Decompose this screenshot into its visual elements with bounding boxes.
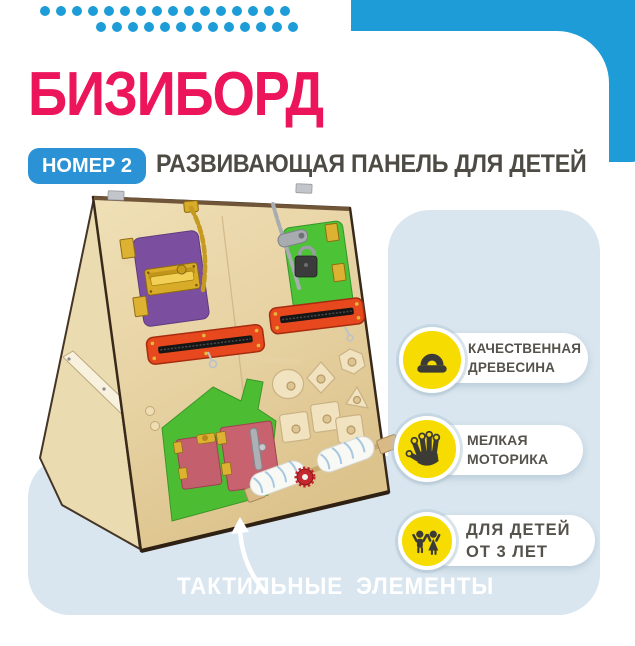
decor-dot xyxy=(272,22,282,32)
decor-dot xyxy=(56,6,66,16)
decor-dot xyxy=(280,6,290,16)
children-icon xyxy=(409,523,445,559)
feature-text: ДРЕВЕСИНА xyxy=(468,358,588,377)
decor-dot xyxy=(184,6,194,16)
decor-dot xyxy=(216,6,226,16)
dots-row-2 xyxy=(96,22,298,32)
hand-icon xyxy=(405,427,449,471)
decor-dot xyxy=(136,6,146,16)
caption-word-1: ТАКТИЛЬНЫЕ xyxy=(177,573,343,600)
number-badge-label: НОМЕР 2 xyxy=(42,155,132,178)
decor-dot xyxy=(176,22,186,32)
feature-text: КАЧЕСТВЕННАЯ xyxy=(468,339,588,358)
busyboard-photo xyxy=(25,180,405,600)
page-title: БИЗИБОРД xyxy=(28,64,323,126)
caption-word-2: ЭЛЕМЕНТЫ xyxy=(356,573,494,600)
decor-dot xyxy=(200,6,210,16)
decor-dot xyxy=(96,22,106,32)
feature-text: МЕЛКАЯ xyxy=(467,431,583,450)
decor-dot xyxy=(152,6,162,16)
decor-dot xyxy=(160,22,170,32)
decor-dot xyxy=(264,6,274,16)
decor-dot xyxy=(224,22,234,32)
decor-dot xyxy=(144,22,154,32)
feature-icon-circle xyxy=(399,327,465,393)
feature-icon-circle xyxy=(398,512,456,570)
decor-dot xyxy=(208,22,218,32)
decor-dot xyxy=(232,6,242,16)
decor-dot xyxy=(104,6,114,16)
page-subtitle: РАЗВИВАЮЩАЯ ПАНЕЛЬ ДЛЯ ДЕТЕЙ xyxy=(156,150,586,179)
promo-page: БИЗИБОРД НОМЕР 2 РАЗВИВАЮЩАЯ ПАНЕЛЬ ДЛЯ … xyxy=(0,0,635,646)
feature-icon-circle xyxy=(394,416,460,482)
decor-dot xyxy=(128,22,138,32)
decor-dot xyxy=(288,22,298,32)
feature-text: МОТОРИКА xyxy=(467,450,583,469)
decor-dot xyxy=(256,22,266,32)
decor-dot xyxy=(240,22,250,32)
decor-dot xyxy=(120,6,130,16)
decor-dot xyxy=(40,6,50,16)
decor-dot xyxy=(112,22,122,32)
caption-label: ТАКТИЛЬНЫЕЭЛЕМЕНТЫ xyxy=(177,573,494,601)
wood-plane-icon xyxy=(411,339,453,381)
dots-row-1 xyxy=(40,6,290,16)
feature-text: ДЛЯ ДЕТЕЙ xyxy=(466,519,595,541)
feature-text: ОТ 3 ЛЕТ xyxy=(466,541,595,563)
decor-dot xyxy=(168,6,178,16)
decor-dot xyxy=(88,6,98,16)
decor-dot xyxy=(72,6,82,16)
decor-dot xyxy=(192,22,202,32)
number-badge: НОМЕР 2 xyxy=(28,148,146,184)
decor-dot xyxy=(248,6,258,16)
